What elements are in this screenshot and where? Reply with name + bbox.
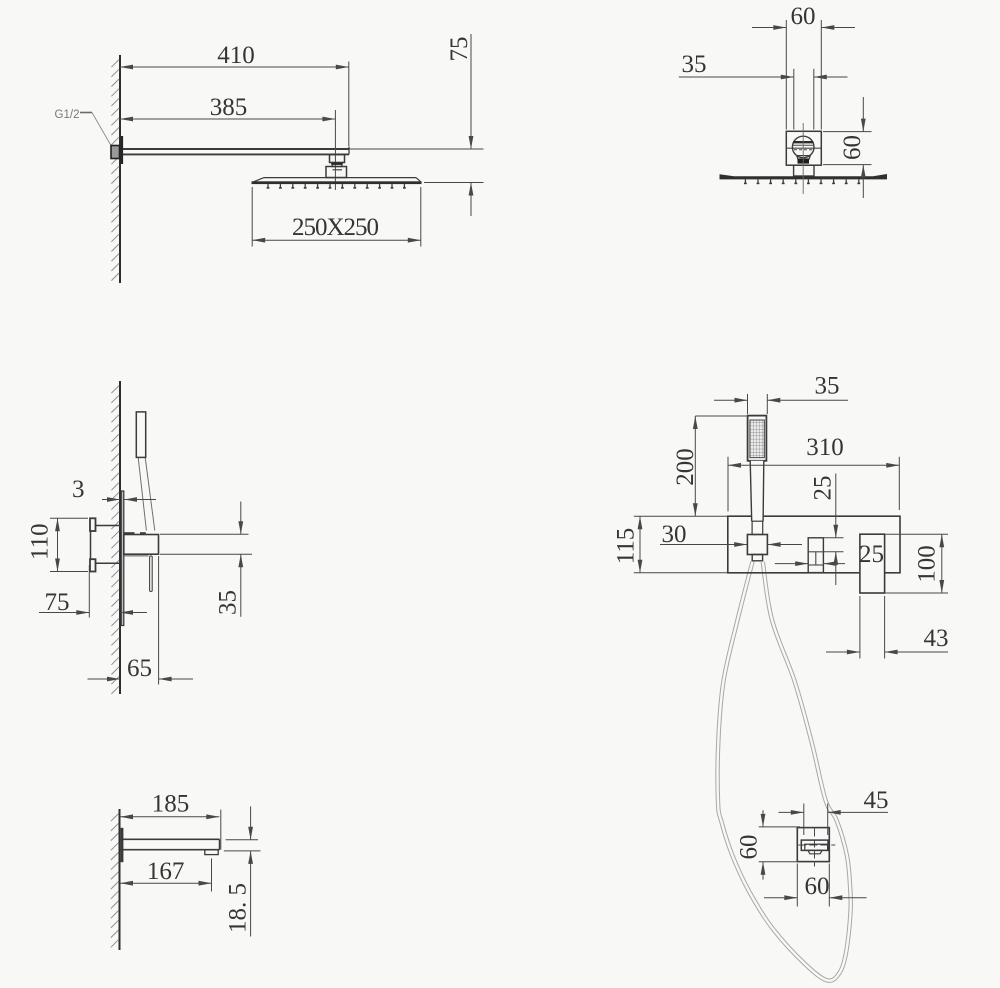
svg-text:45: 45 [864, 787, 889, 814]
svg-text:30: 30 [662, 521, 687, 548]
svg-text:35: 35 [815, 373, 840, 400]
svg-text:3: 3 [72, 476, 85, 503]
svg-text:75: 75 [45, 589, 70, 616]
svg-text:310: 310 [806, 434, 844, 461]
svg-text:18. 5: 18. 5 [225, 883, 252, 933]
svg-text:410: 410 [217, 42, 255, 69]
svg-text:100: 100 [914, 545, 941, 583]
svg-text:35: 35 [682, 51, 707, 78]
svg-text:185: 185 [152, 791, 190, 818]
svg-text:43: 43 [924, 625, 949, 652]
svg-text:167: 167 [147, 858, 185, 885]
svg-text:250X250: 250X250 [292, 214, 379, 241]
svg-text:75: 75 [446, 37, 473, 62]
svg-text:385: 385 [210, 94, 248, 121]
svg-text:200: 200 [672, 448, 699, 486]
svg-text:60: 60 [736, 835, 763, 860]
svg-text:25: 25 [859, 541, 884, 568]
svg-text:110: 110 [27, 523, 54, 560]
svg-text:35: 35 [215, 590, 242, 615]
svg-text:60: 60 [791, 3, 816, 30]
svg-text:G1/2: G1/2 [55, 109, 80, 121]
svg-text:25: 25 [810, 476, 837, 501]
svg-text:115: 115 [613, 528, 640, 565]
svg-text:60: 60 [839, 135, 866, 160]
svg-text:60: 60 [805, 873, 830, 900]
svg-text:65: 65 [127, 655, 152, 682]
